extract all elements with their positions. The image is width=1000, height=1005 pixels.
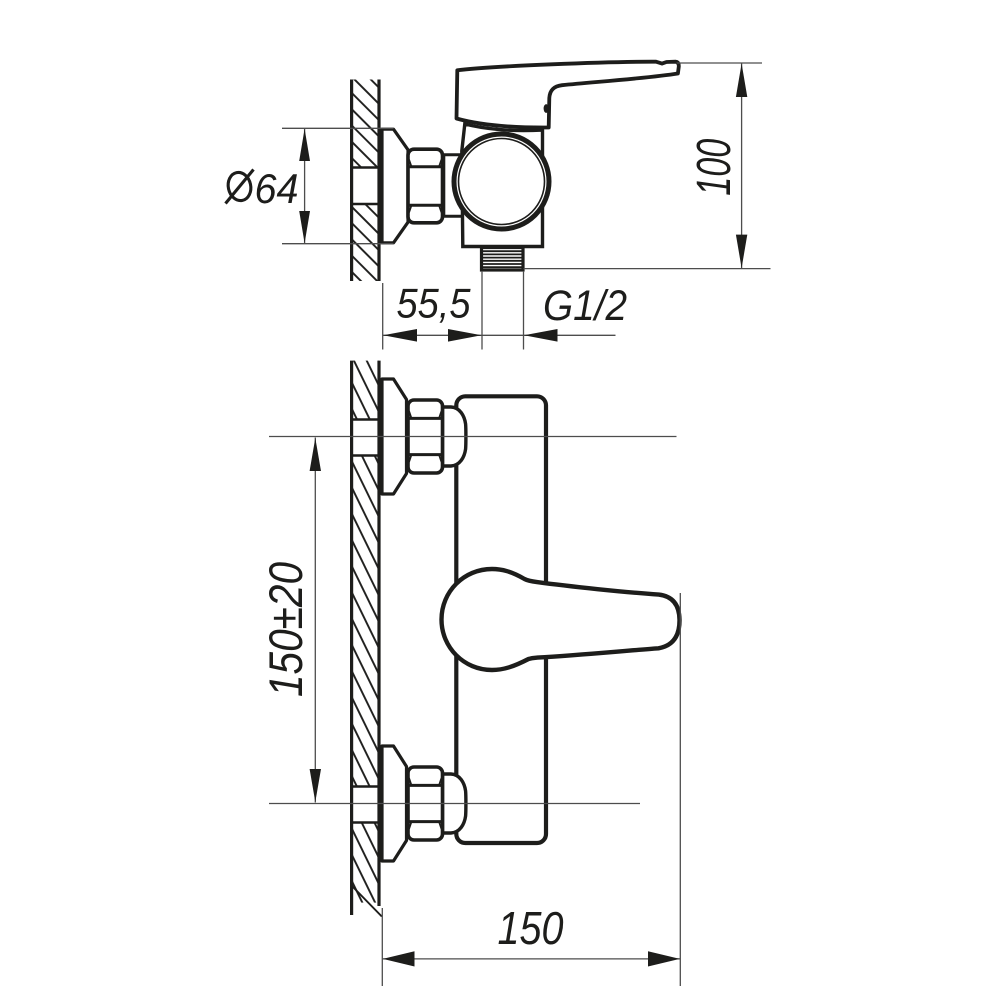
svg-text:55,5: 55,5 <box>397 280 472 327</box>
svg-text:150: 150 <box>498 902 564 954</box>
svg-text:64: 64 <box>255 165 299 212</box>
svg-text:150±20: 150±20 <box>259 562 312 697</box>
svg-text:100: 100 <box>688 139 741 196</box>
svg-text:G1/2: G1/2 <box>543 282 627 330</box>
